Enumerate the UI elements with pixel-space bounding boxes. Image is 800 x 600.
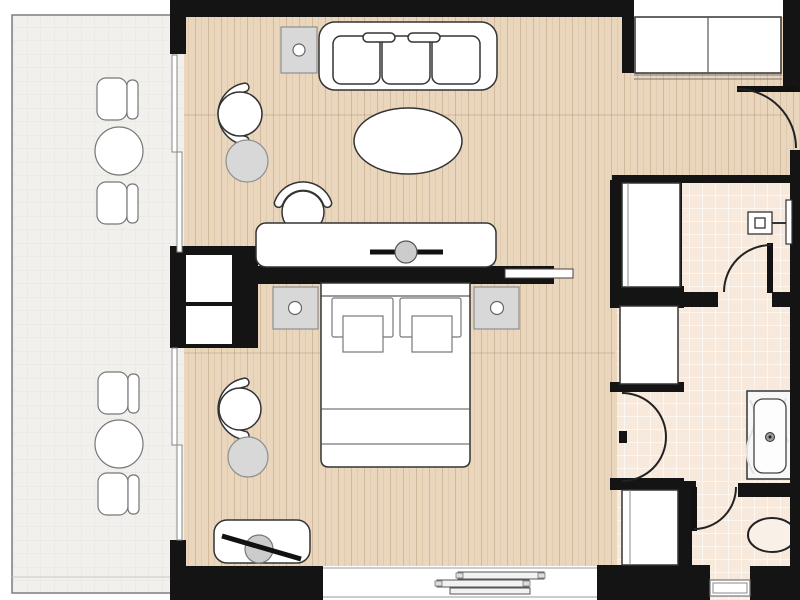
shower-fixture	[748, 212, 772, 234]
outdoor-chair-back	[128, 374, 139, 413]
sofa-cushion	[382, 36, 430, 84]
shower-room-door-leaf	[767, 243, 773, 293]
floor-plan-page	[0, 0, 800, 600]
wall-entry-bath	[612, 175, 800, 183]
outdoor-chair-back	[127, 184, 138, 223]
louver-end-cap	[538, 573, 545, 578]
wall-wardrobe-left	[622, 0, 634, 73]
throw-pillow	[363, 33, 395, 42]
outdoor-chair	[98, 372, 128, 414]
nightstand-lamp	[289, 302, 302, 315]
sofa-cushion	[333, 36, 380, 84]
throw-pillow	[408, 33, 440, 42]
louver-end-cap	[435, 581, 442, 586]
round-side-table	[228, 437, 268, 477]
wall-bottom-left	[180, 566, 323, 600]
sofa-cushion	[432, 36, 480, 84]
wall-below-bathtub	[738, 483, 800, 497]
outdoor-table	[95, 420, 143, 468]
window-louver	[458, 572, 544, 579]
window-louver	[437, 580, 529, 587]
pillow-small	[412, 316, 452, 352]
pocket-sliding-door	[505, 269, 573, 278]
outdoor-chair	[97, 182, 127, 224]
armchair	[219, 388, 261, 430]
wall-shower-room-south-right	[772, 292, 800, 307]
coffee-table	[354, 108, 462, 174]
nightstand-lamp	[491, 302, 504, 315]
balcony	[12, 15, 184, 593]
table-lamp	[293, 44, 305, 56]
tv-mount	[395, 241, 417, 263]
closet-a	[622, 183, 680, 287]
double-door-center-post	[619, 431, 627, 443]
bathroom-door-leaf	[691, 487, 697, 531]
wall-top	[170, 0, 622, 17]
toilet	[748, 518, 796, 552]
window-louver	[450, 588, 530, 594]
sliding-door-panel	[172, 348, 177, 445]
bathtub-drain-dot	[769, 436, 772, 439]
wall-balcony-top-stub	[170, 0, 186, 54]
bottom-window	[323, 566, 597, 600]
sliding-door-panel	[172, 55, 177, 152]
wall-bottom-middle	[597, 565, 710, 600]
outdoor-chair	[98, 473, 128, 515]
bath-large-fixtures	[747, 391, 796, 552]
sliding-door-panel	[177, 152, 182, 252]
outdoor-seating-set	[95, 78, 143, 224]
wall-closet-c-right	[678, 487, 692, 567]
outdoor-chair	[97, 78, 127, 120]
wall-shower-room-south-left	[612, 292, 718, 307]
pillow-small	[343, 316, 383, 352]
wall-bottom-right	[750, 566, 800, 600]
outdoor-chair-back	[128, 475, 139, 514]
shower-wall-panel	[786, 200, 792, 244]
floor-plan-drawing	[0, 0, 800, 600]
louver-end-cap	[523, 581, 530, 586]
outdoor-chair-back	[127, 80, 138, 119]
louver-end-cap	[456, 573, 463, 578]
wardrobe-niche	[634, 0, 783, 17]
closet-b	[620, 306, 678, 384]
outdoor-seating-set	[95, 372, 143, 515]
wall-top-right	[783, 0, 800, 92]
console-desk	[256, 223, 496, 267]
sliding-door-panel	[177, 445, 182, 540]
armchair	[218, 92, 262, 136]
outdoor-table	[95, 127, 143, 175]
service-niche	[186, 306, 232, 344]
service-niche	[186, 255, 232, 302]
round-side-table	[226, 140, 268, 182]
window-bench	[710, 580, 750, 596]
